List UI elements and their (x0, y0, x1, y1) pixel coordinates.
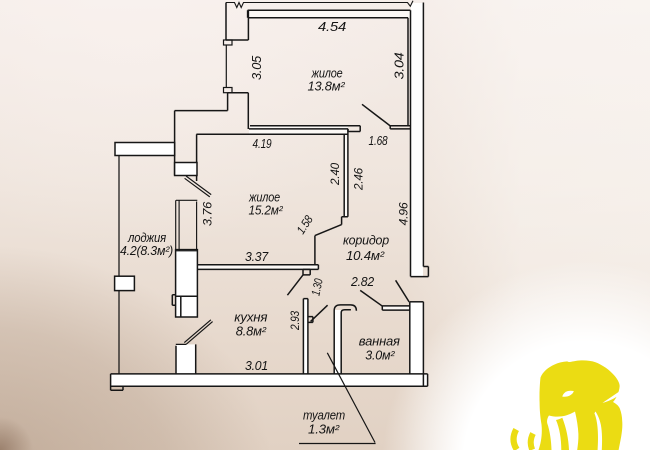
svg-text:3.37: 3.37 (245, 250, 269, 264)
svg-text:ванная: ванная (359, 335, 401, 349)
svg-text:2.93: 2.93 (288, 311, 302, 331)
svg-text:2.46: 2.46 (352, 167, 366, 190)
svg-text:2.40: 2.40 (328, 162, 342, 185)
svg-text:1.68: 1.68 (369, 134, 388, 148)
svg-text:3.76: 3.76 (201, 201, 215, 226)
svg-text:4.96: 4.96 (397, 202, 411, 226)
svg-text:15.2м²: 15.2м² (249, 202, 284, 217)
svg-text:4.2(8.3м²): 4.2(8.3м²) (120, 243, 173, 258)
svg-text:3.05: 3.05 (250, 56, 264, 80)
svg-text:коридор: коридор (343, 233, 389, 248)
svg-text:13.8м²: 13.8м² (308, 78, 346, 93)
svg-text:4.54: 4.54 (318, 20, 346, 34)
svg-text:1.30: 1.30 (308, 277, 325, 297)
svg-text:3.01: 3.01 (245, 359, 268, 373)
svg-text:1.3м²: 1.3м² (308, 422, 340, 437)
svg-text:1.58: 1.58 (294, 213, 316, 237)
svg-text:3.0м²: 3.0м² (365, 349, 395, 363)
svg-text:2.82: 2.82 (350, 275, 374, 289)
svg-text:8.8м²: 8.8м² (236, 323, 267, 338)
svg-text:туалет: туалет (303, 407, 345, 422)
svg-text:4.19: 4.19 (253, 137, 272, 151)
svg-text:10.4м²: 10.4м² (346, 248, 385, 263)
svg-text:кухня: кухня (234, 309, 267, 324)
svg-text:3.04: 3.04 (393, 52, 407, 79)
